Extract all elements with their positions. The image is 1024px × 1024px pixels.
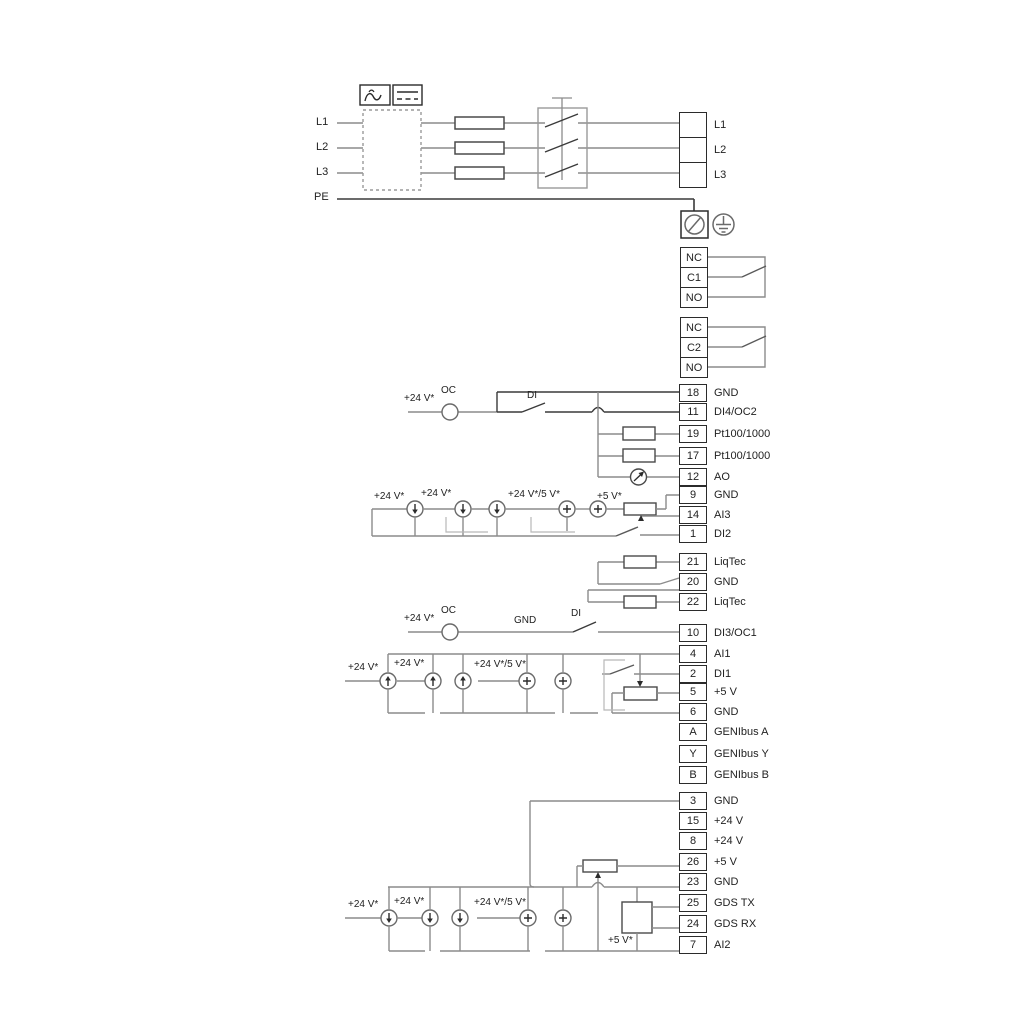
annotation-24v-5v: +24 V*/5 V*	[474, 659, 526, 670]
annotation-24v: +24 V*	[374, 491, 404, 502]
option-bracket	[604, 660, 625, 710]
annotation-24v: +24 V*	[404, 393, 434, 404]
wiper-arrow-icon	[595, 872, 601, 878]
switch-contact-icon	[522, 403, 545, 412]
terminal-26: 26	[679, 853, 707, 871]
fuse-icon	[455, 117, 504, 179]
current-sink-icon	[452, 910, 468, 926]
power-input-l1: L1	[316, 116, 328, 128]
annotation-di: DI	[571, 608, 581, 619]
annotation-24v: +24 V*	[348, 662, 378, 673]
plus-source-icon	[555, 910, 571, 926]
terminal-3-label: GND	[714, 792, 738, 810]
annotation-24v: +24 V*	[348, 899, 378, 910]
terminal-a: A	[679, 723, 707, 741]
dc-line-icon	[393, 85, 422, 105]
terminal-18: 18	[679, 384, 707, 402]
plus-source-icon	[559, 501, 575, 517]
mains-terminal-l3	[679, 162, 707, 188]
terminal-26-label: +5 V	[714, 853, 737, 871]
current-sink-icon	[489, 501, 505, 517]
terminal-22-label: LiqTec	[714, 593, 746, 611]
terminal-15-label: +24 V	[714, 812, 743, 830]
resistor-icon	[624, 556, 656, 568]
plus-source-icon	[520, 910, 536, 926]
terminal-8-label: +24 V	[714, 832, 743, 850]
relay1-c1: C1	[680, 267, 708, 288]
terminal-18-label: GND	[714, 384, 738, 402]
power-input-pe: PE	[314, 191, 329, 203]
annotation-gnd: GND	[514, 615, 536, 626]
potentiometer-icon	[624, 687, 657, 700]
terminal-1: 1	[679, 525, 707, 543]
terminal-15: 15	[679, 812, 707, 830]
frequency-converter-box	[363, 110, 421, 190]
current-source-icon	[380, 673, 396, 689]
annotation-24v: +24 V*	[394, 896, 424, 907]
wiring-svg	[0, 0, 1024, 1024]
current-source-icon	[455, 673, 471, 689]
terminal-2: 2	[679, 665, 707, 683]
option-bracket	[446, 517, 575, 532]
terminal-19: 19	[679, 425, 707, 443]
ai2-gds-wiring	[345, 801, 679, 951]
switch-contact-icon	[616, 527, 638, 536]
terminal-10: 10	[679, 624, 707, 642]
current-sink-icon	[407, 501, 423, 517]
terminal-b: B	[679, 766, 707, 784]
terminal-23-label: GND	[714, 873, 738, 891]
annotation-di: DI	[527, 390, 537, 401]
terminal-7: 7	[679, 936, 707, 954]
annotation-24v: +24 V*	[404, 613, 434, 624]
terminal-9: 9	[679, 486, 707, 504]
terminal-10-label: DI3/OC1	[714, 624, 757, 642]
open-collector-icon	[442, 624, 458, 640]
relay1-nc: NC	[680, 247, 708, 268]
annotation-5v: +5 V*	[597, 491, 622, 502]
contactor-icon	[538, 98, 587, 188]
annotation-24v: +24 V*	[421, 488, 451, 499]
potentiometer-icon	[583, 860, 617, 872]
terminal-3: 3	[679, 792, 707, 810]
terminal-b-label: GENIbus B	[714, 766, 769, 784]
annotation-24v-5v: +24 V*/5 V*	[474, 897, 526, 908]
terminal-5: 5	[679, 683, 707, 701]
terminal-17: 17	[679, 447, 707, 465]
relay2-contact-icon	[708, 327, 766, 367]
wiring-diagram: L1 L2 L3 PE L1 L2 L3 NC C1 NO NC C2 NO 1…	[0, 0, 1024, 1024]
terminal-25: 25	[679, 894, 707, 912]
resistor-icon	[623, 427, 655, 440]
terminal-23: 23	[679, 873, 707, 891]
terminal-21: 21	[679, 553, 707, 571]
terminal-a-label: GENIbus A	[714, 723, 768, 741]
current-sink-icon	[381, 910, 397, 926]
current-sink-icon	[455, 501, 471, 517]
terminal-4: 4	[679, 645, 707, 663]
di3-oc1-wiring	[408, 622, 679, 640]
mains-wires	[337, 123, 694, 211]
current-sink-icon	[422, 910, 438, 926]
relay1-contact-icon	[708, 257, 766, 297]
power-input-l3: L3	[316, 166, 328, 178]
terminal-6-label: GND	[714, 703, 738, 721]
terminal-24: 24	[679, 915, 707, 933]
terminal-22: 22	[679, 593, 707, 611]
plus-source-icon	[590, 501, 606, 517]
gds-sensor-box-icon	[622, 902, 652, 933]
relay2-no: NO	[680, 357, 708, 378]
mains-label-l1: L1	[714, 116, 726, 134]
relay2-c2: C2	[680, 337, 708, 358]
terminal-1-label: DI2	[714, 525, 731, 543]
annotation-oc: OC	[441, 605, 456, 616]
annotation-24v: +24 V*	[394, 658, 424, 669]
resistor-icon	[624, 596, 656, 608]
plus-source-icon	[519, 673, 535, 689]
terminal-11: 11	[679, 403, 707, 421]
mains-terminal-l1	[679, 112, 707, 138]
terminal-14: 14	[679, 506, 707, 524]
resistor-icon	[623, 449, 655, 462]
relay1-no: NO	[680, 287, 708, 308]
mains-label-l2: L2	[714, 141, 726, 159]
annotation-5v: +5 V*	[608, 935, 633, 946]
terminal-8: 8	[679, 832, 707, 850]
terminal-y-label: GENIbus Y	[714, 745, 769, 763]
ao-meter-icon	[631, 469, 647, 485]
terminal-y: Y	[679, 745, 707, 763]
terminal-2-label: DI1	[714, 665, 731, 683]
terminal-7-label: AI2	[714, 936, 731, 954]
annotation-24v-5v: +24 V*/5 V*	[508, 489, 560, 500]
earth-ground-icon	[713, 214, 734, 235]
terminal-20: 20	[679, 573, 707, 591]
open-collector-icon	[442, 404, 458, 420]
ac-wave-icon	[360, 85, 390, 105]
terminal-12-label: AO	[714, 468, 730, 486]
terminal-9-label: GND	[714, 486, 738, 504]
mains-terminal-l2	[679, 137, 707, 163]
relay2-nc: NC	[680, 317, 708, 338]
terminal-24-label: GDS RX	[714, 915, 756, 933]
ai3-di2-wiring	[372, 495, 679, 536]
terminal-4-label: AI1	[714, 645, 731, 663]
terminal-6: 6	[679, 703, 707, 721]
terminal-19-label: Pt100/1000	[714, 425, 770, 443]
switch-contact-icon	[610, 665, 634, 674]
terminal-25-label: GDS TX	[714, 894, 755, 912]
terminal-14-label: AI3	[714, 506, 731, 524]
wiper-arrow-icon	[637, 681, 643, 687]
terminal-21-label: LiqTec	[714, 553, 746, 571]
terminal-5-label: +5 V	[714, 683, 737, 701]
di4-oc2-wiring	[408, 392, 679, 485]
pe-terminal-icon	[681, 211, 708, 238]
potentiometer-icon	[624, 503, 656, 515]
terminal-20-label: GND	[714, 573, 738, 591]
terminal-11-label: DI4/OC2	[714, 403, 757, 421]
switch-contact-icon	[573, 622, 596, 632]
liqtec-wiring	[588, 556, 679, 608]
mains-label-l3: L3	[714, 166, 726, 184]
terminal-12: 12	[679, 468, 707, 486]
current-source-icon	[425, 673, 441, 689]
annotation-oc: OC	[441, 385, 456, 396]
terminal-17-label: Pt100/1000	[714, 447, 770, 465]
power-input-l2: L2	[316, 141, 328, 153]
plus-source-icon	[555, 673, 571, 689]
